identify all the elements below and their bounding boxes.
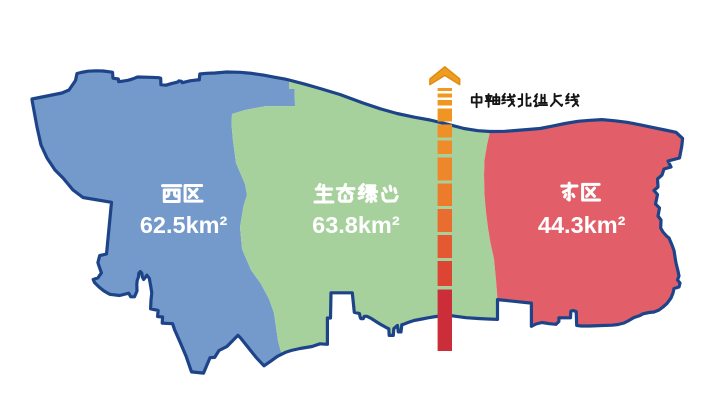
svg-text:44.3km²: 44.3km² bbox=[538, 212, 626, 238]
svg-text:62.5km²: 62.5km² bbox=[140, 212, 228, 238]
svg-text:63.8km²: 63.8km² bbox=[312, 212, 400, 238]
